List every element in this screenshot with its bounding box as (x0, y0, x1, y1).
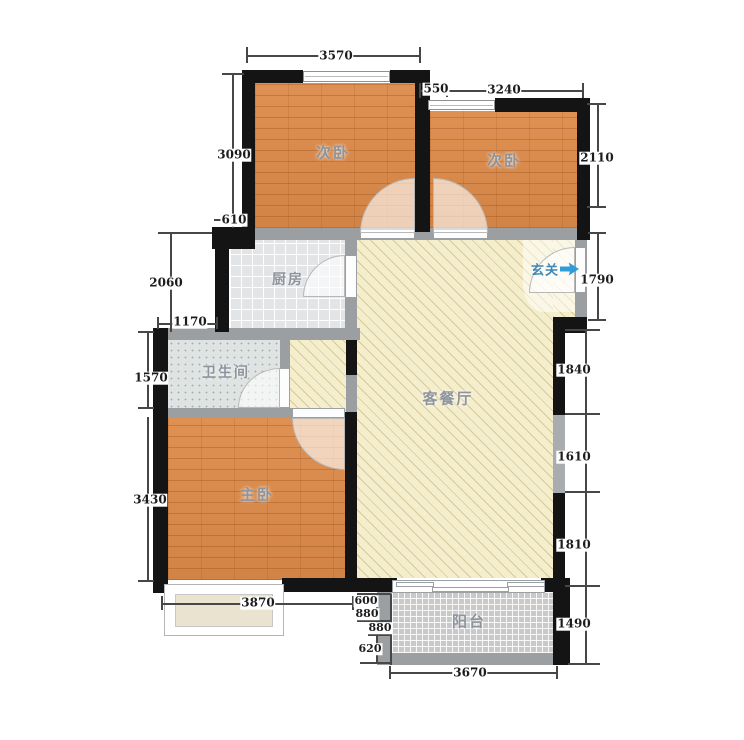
wall (345, 412, 357, 582)
dim-label: 880 (355, 608, 380, 620)
dim-label: 1810 (556, 539, 591, 552)
dim-tick (588, 319, 606, 321)
dim-label: 3090 (216, 149, 251, 162)
room-label-kitchen: 厨房 (272, 269, 304, 289)
bedroom-top-right-window (428, 100, 495, 110)
sliding-door-panel (396, 582, 434, 587)
dim-tick (246, 47, 248, 63)
dim-tick (587, 206, 606, 208)
wall (495, 98, 590, 112)
sliding-door-panel (507, 582, 545, 587)
bedroom-top-left-window (303, 71, 390, 82)
dim-label: 1610 (556, 451, 591, 464)
dim-label: 2060 (148, 277, 183, 290)
dim-label: 1490 (556, 618, 591, 631)
dim-label: 550 (422, 83, 449, 96)
dim-label: 880 (368, 622, 393, 634)
bathroom-door-leaf (279, 368, 290, 408)
dim-label: 2110 (579, 152, 614, 165)
room-label-bedroom-top-left: 次卧 (316, 142, 350, 163)
room-label-living-dining: 客餐厅 (422, 388, 473, 409)
dim-label: 1840 (556, 364, 591, 377)
room-label-bedroom-top-right: 次卧 (487, 150, 521, 171)
dim-label: 610 (220, 214, 247, 227)
wall (168, 328, 360, 340)
wall (577, 98, 590, 240)
wall (553, 317, 587, 333)
wall (153, 328, 168, 593)
dim-tick (582, 83, 584, 98)
dim-tick (565, 413, 600, 415)
dim-tick (419, 83, 421, 98)
room-label-balcony: 阳台 (452, 611, 486, 632)
dim-tick (588, 232, 606, 234)
balcony-bottom-wall (377, 653, 558, 665)
wall (280, 340, 290, 368)
wall (282, 578, 397, 592)
master-door-leaf (292, 408, 345, 418)
room-label-entry: 玄关 (531, 260, 559, 279)
sliding-door-panel (432, 587, 509, 592)
room-label-master-bedroom: 主卧 (240, 484, 274, 505)
dim-label: 1170 (172, 316, 207, 329)
dim-tick (565, 329, 600, 331)
wall (346, 340, 357, 375)
kitchen-door-leaf (345, 255, 357, 298)
dim-label: 3570 (318, 50, 353, 63)
dim-label: 600 (354, 595, 379, 607)
dim-label: 620 (358, 643, 383, 655)
room-label-bathroom: 卫生间 (202, 362, 250, 382)
dim-tick (161, 596, 163, 610)
dim-tick (419, 47, 421, 63)
dim-tick (138, 407, 154, 409)
dim-tick (565, 491, 600, 493)
dim-tick (138, 580, 154, 582)
dim-tick (138, 331, 154, 333)
dim-tick (565, 585, 600, 587)
floor-plan: 3570 550 3240 3090 610 2060 1170 1570 34… (0, 0, 744, 740)
dim-label: 3240 (486, 84, 521, 97)
dim-tick (157, 317, 159, 329)
dim-tick (587, 103, 606, 105)
dim-tick (568, 663, 600, 665)
wall (212, 227, 255, 249)
dim-label: 1570 (133, 372, 168, 385)
dim-tick (556, 666, 558, 679)
wall (153, 408, 292, 418)
dim-tick (360, 662, 392, 664)
wall (346, 375, 357, 412)
dim-label: 3670 (452, 667, 487, 680)
dim-tick (158, 232, 212, 234)
dim-label: 3430 (132, 494, 167, 507)
dim-tick (222, 73, 244, 75)
dim-tick (216, 317, 218, 329)
dim-label: 1790 (579, 274, 614, 287)
dim-label: 3870 (240, 597, 275, 610)
dim-tick (389, 666, 391, 679)
